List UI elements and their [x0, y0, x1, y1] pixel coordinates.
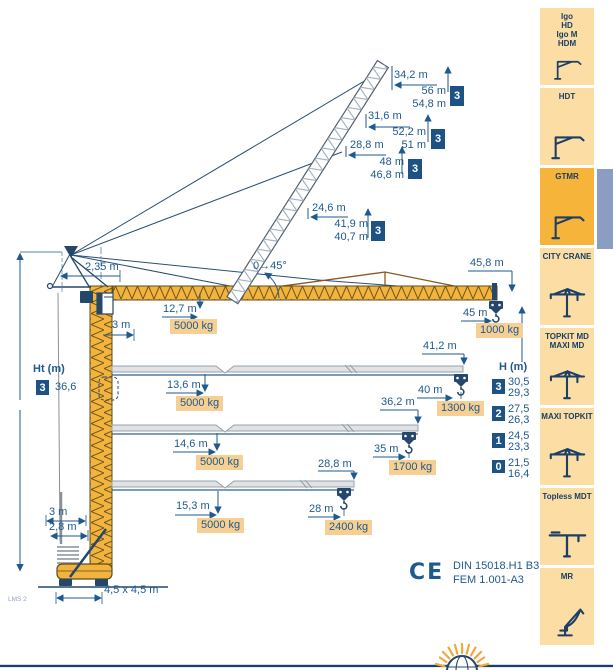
sidebar-item-gtmr[interactable]: GTMR: [540, 168, 594, 245]
cert-line-1: DIN 15018.H1 B3: [453, 560, 539, 572]
dim-raised-height-3a: 48 m: [364, 156, 404, 168]
tower-badge: 3: [371, 221, 385, 241]
drawing-reference: LMS 2: [8, 596, 27, 603]
self-erecting-crane-icon: [546, 128, 588, 162]
active-item-indicator: [597, 169, 613, 249]
tower-crane-icon: [546, 284, 588, 322]
config1-tip-load: 1300 kg: [437, 401, 484, 416]
sidebar-item-label: HDT: [559, 92, 575, 101]
config3-max-load: 5000 kg: [197, 518, 244, 533]
hook-height-value: 26,3: [508, 415, 529, 426]
config2-load-radius: 14,6 m: [174, 438, 208, 450]
sidebar-item-label: HD: [561, 21, 573, 30]
dim-raised-height-1a: 56 m: [406, 85, 446, 97]
config3-load-radius: 15,3 m: [176, 500, 210, 512]
dim-raised-height-3b: 46,8 m: [364, 169, 404, 181]
tower-height-value: 36,6: [55, 381, 76, 393]
sidebar-item-label: Igo: [561, 12, 573, 21]
topless-crane-icon: [546, 524, 588, 562]
dim-raised-height-2b: 51 m: [386, 139, 426, 151]
config1-tip-radius: 40 m: [418, 384, 442, 396]
config1-load-radius: 13,6 m: [167, 379, 201, 391]
config1-reach: 41,2 m: [423, 340, 457, 352]
sidebar-item-label: MAXI TOPKIT: [541, 412, 592, 421]
dim-counter-jib: 2,35 m: [85, 261, 119, 273]
sidebar-item-topless-mdt[interactable]: Topless MDT: [540, 488, 594, 565]
dim-jib-tip: 45,8 m: [470, 257, 504, 269]
luffing-angle-label: 0→45°: [253, 260, 287, 272]
config0-tip-radius: 45 m: [463, 307, 487, 319]
hook-height-value: 23,3: [508, 442, 529, 453]
tower-badge: 3: [450, 86, 464, 106]
sidebar-item-label: GTMR: [555, 172, 579, 181]
tower-height-label: Ht (m): [33, 363, 65, 375]
sidebar-item-maxi-topkit[interactable]: MAXI TOPKIT: [540, 408, 594, 485]
sidebar-item-label: Igo M: [557, 30, 578, 39]
crane-load-diagram-page: 34,2 m 56 m 54,8 m 3 31,6 m 52,2 m 51 m …: [0, 0, 613, 670]
sidebar-item-igo[interactable]: Igo HD Igo M HDM: [540, 8, 594, 85]
hook-height-label: H (m): [499, 361, 527, 373]
config0-max-load: 5000 kg: [170, 319, 217, 334]
dim-raised-height-2a: 52,2 m: [386, 126, 426, 138]
tower-crane-icon: [546, 368, 588, 402]
hook-height-badge: 3: [492, 379, 505, 394]
dim-footprint: 4,5 x 4,5 m: [104, 584, 158, 596]
hook-height-value: 16,4: [508, 469, 529, 480]
tower-badge: 3: [431, 129, 445, 149]
hook-height-badge: 2: [492, 406, 505, 421]
tower-crane-icon: [546, 444, 588, 482]
self-erecting-crane-icon: [546, 208, 588, 242]
dim-raised-height-4a: 41,9 m: [328, 218, 368, 230]
hook-height-badge: 0: [492, 460, 505, 473]
dim-base-2: 2,8 m: [49, 521, 77, 533]
config3-reach: 28,8 m: [318, 458, 352, 470]
config0-tip-load: 1000 kg: [476, 323, 523, 338]
sidebar-item-hdt[interactable]: HDT: [540, 88, 594, 165]
luffing-crane-icon: [546, 602, 588, 642]
tower-badge: 3: [408, 159, 422, 179]
crane-range-sidebar: Igo HD Igo M HDM HDT GTMR CITY CRANE TOP…: [540, 8, 594, 645]
config2-tip-radius: 35 m: [374, 443, 398, 455]
dim-raised-radius-3: 28,8 m: [350, 139, 384, 151]
config2-reach: 36,2 m: [381, 396, 415, 408]
hook-height-badge: 1: [492, 433, 505, 448]
tower-badge: 3: [36, 380, 49, 395]
sidebar-item-city-crane[interactable]: CITY CRANE: [540, 248, 594, 325]
sidebar-item-topkit-md[interactable]: TOPKIT MD MAXI MD: [540, 328, 594, 405]
config1-max-load: 5000 kg: [176, 396, 223, 411]
dim-raised-radius-2: 31,6 m: [368, 110, 402, 122]
sidebar-item-mr[interactable]: MR: [540, 568, 594, 645]
dim-base-1: 3 m: [49, 506, 67, 518]
sidebar-item-label: HDM: [558, 39, 576, 48]
sidebar-item-label: MR: [561, 572, 573, 581]
sidebar-item-label: TOPKIT MD: [545, 332, 589, 341]
config3-tip-load: 2400 kg: [325, 520, 372, 535]
config3-tip-radius: 28 m: [309, 503, 333, 515]
dim-raised-height-4b: 40,7 m: [328, 231, 368, 243]
config0-load-radius: 12,7 m: [163, 303, 197, 315]
cert-line-2: FEM 1.001-A3: [453, 574, 524, 586]
sidebar-item-label: Topless MDT: [542, 492, 591, 501]
config2-max-load: 5000 kg: [196, 455, 243, 470]
config2-tip-load: 1700 kg: [389, 460, 436, 475]
ce-mark: CE: [409, 560, 444, 585]
hook-height-value: 29,3: [508, 388, 529, 399]
self-erecting-crane-icon: [547, 54, 587, 82]
dim-raised-radius-1: 34,2 m: [394, 69, 428, 81]
sidebar-item-label: CITY CRANE: [543, 252, 592, 261]
dim-cab-offset: 3 m: [112, 319, 130, 331]
sidebar-item-label: MAXI MD: [550, 341, 585, 350]
dim-raised-height-1b: 54,8 m: [406, 98, 446, 110]
dim-raised-radius-4: 24,6 m: [312, 202, 346, 214]
